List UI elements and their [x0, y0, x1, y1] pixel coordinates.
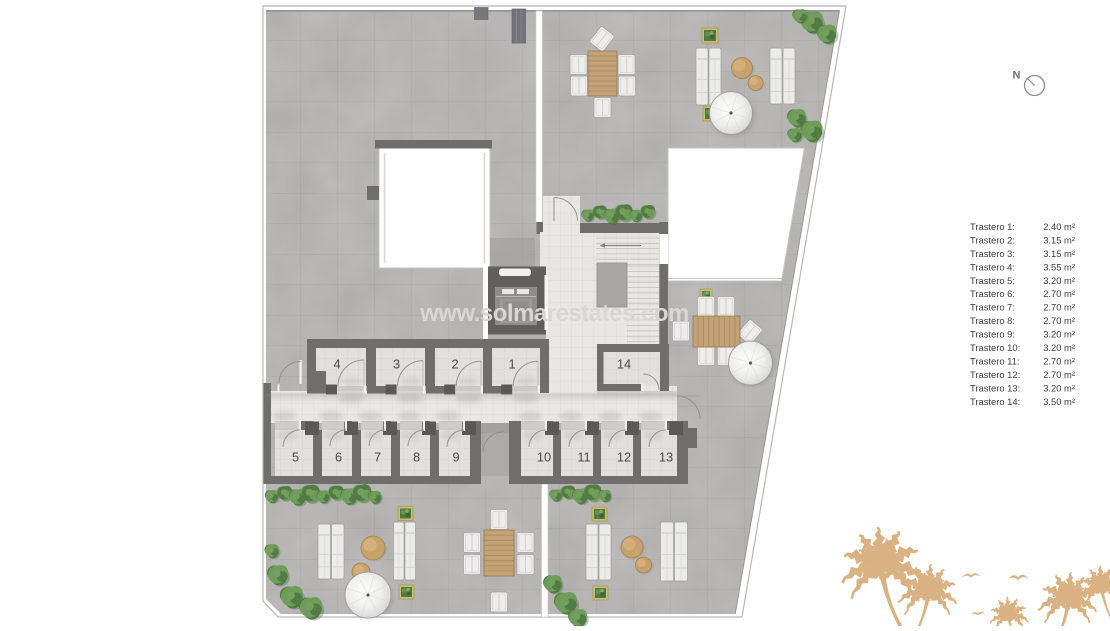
svg-text:2.70 m²: 2.70 m² [1043, 288, 1075, 299]
svg-text:8: 8 [413, 450, 420, 465]
svg-text:2.70 m²: 2.70 m² [1043, 302, 1075, 313]
svg-text:N: N [1013, 70, 1021, 82]
svg-text:12: 12 [617, 450, 631, 465]
svg-text:2.40 m²: 2.40 m² [1043, 221, 1075, 232]
svg-text:Trastero 14:: Trastero 14: [970, 396, 1020, 407]
svg-text:4: 4 [333, 357, 340, 372]
svg-text:Trastero 7:: Trastero 7: [970, 302, 1015, 313]
svg-text:3.50 m²: 3.50 m² [1043, 396, 1075, 407]
svg-text:3.15 m²: 3.15 m² [1043, 234, 1075, 245]
svg-text:13: 13 [659, 450, 673, 465]
svg-text:2: 2 [451, 357, 458, 372]
svg-text:Trastero 12:: Trastero 12: [970, 369, 1020, 380]
svg-text:Trastero 8:: Trastero 8: [970, 315, 1015, 326]
svg-text:3.20 m²: 3.20 m² [1043, 275, 1075, 286]
svg-text:3.20 m²: 3.20 m² [1043, 342, 1075, 353]
svg-text:Trastero 10:: Trastero 10: [970, 342, 1020, 353]
svg-text:3.15 m²: 3.15 m² [1043, 248, 1075, 259]
svg-text:3: 3 [393, 357, 400, 372]
svg-text:Trastero 9:: Trastero 9: [970, 329, 1015, 340]
svg-text:14: 14 [617, 357, 631, 372]
svg-text:10: 10 [537, 450, 551, 465]
svg-text:3.20 m²: 3.20 m² [1043, 382, 1075, 393]
svg-text:2.70 m²: 2.70 m² [1043, 315, 1075, 326]
svg-text:2.70 m²: 2.70 m² [1043, 356, 1075, 367]
svg-text:www.solmarestates.com: www.solmarestates.com [419, 300, 689, 327]
svg-text:11: 11 [577, 450, 590, 465]
svg-text:5: 5 [292, 450, 299, 465]
svg-text:Trastero 6:: Trastero 6: [970, 288, 1015, 299]
svg-text:3.20 m²: 3.20 m² [1043, 329, 1075, 340]
svg-text:Trastero 2:: Trastero 2: [970, 234, 1015, 245]
svg-text:Trastero 1:: Trastero 1: [970, 221, 1015, 232]
svg-text:3.55 m²: 3.55 m² [1043, 261, 1075, 272]
svg-text:Trastero 4:: Trastero 4: [970, 261, 1015, 272]
svg-text:2.70 m²: 2.70 m² [1043, 369, 1075, 380]
svg-text:1: 1 [508, 357, 515, 372]
svg-text:7: 7 [374, 450, 381, 465]
svg-text:Trastero 11:: Trastero 11: [970, 356, 1020, 367]
svg-text:Trastero 13:: Trastero 13: [970, 382, 1020, 393]
svg-text:9: 9 [452, 450, 459, 465]
svg-text:Trastero 3:: Trastero 3: [970, 248, 1015, 259]
svg-text:Trastero 5:: Trastero 5: [970, 275, 1015, 286]
svg-text:6: 6 [335, 450, 342, 465]
